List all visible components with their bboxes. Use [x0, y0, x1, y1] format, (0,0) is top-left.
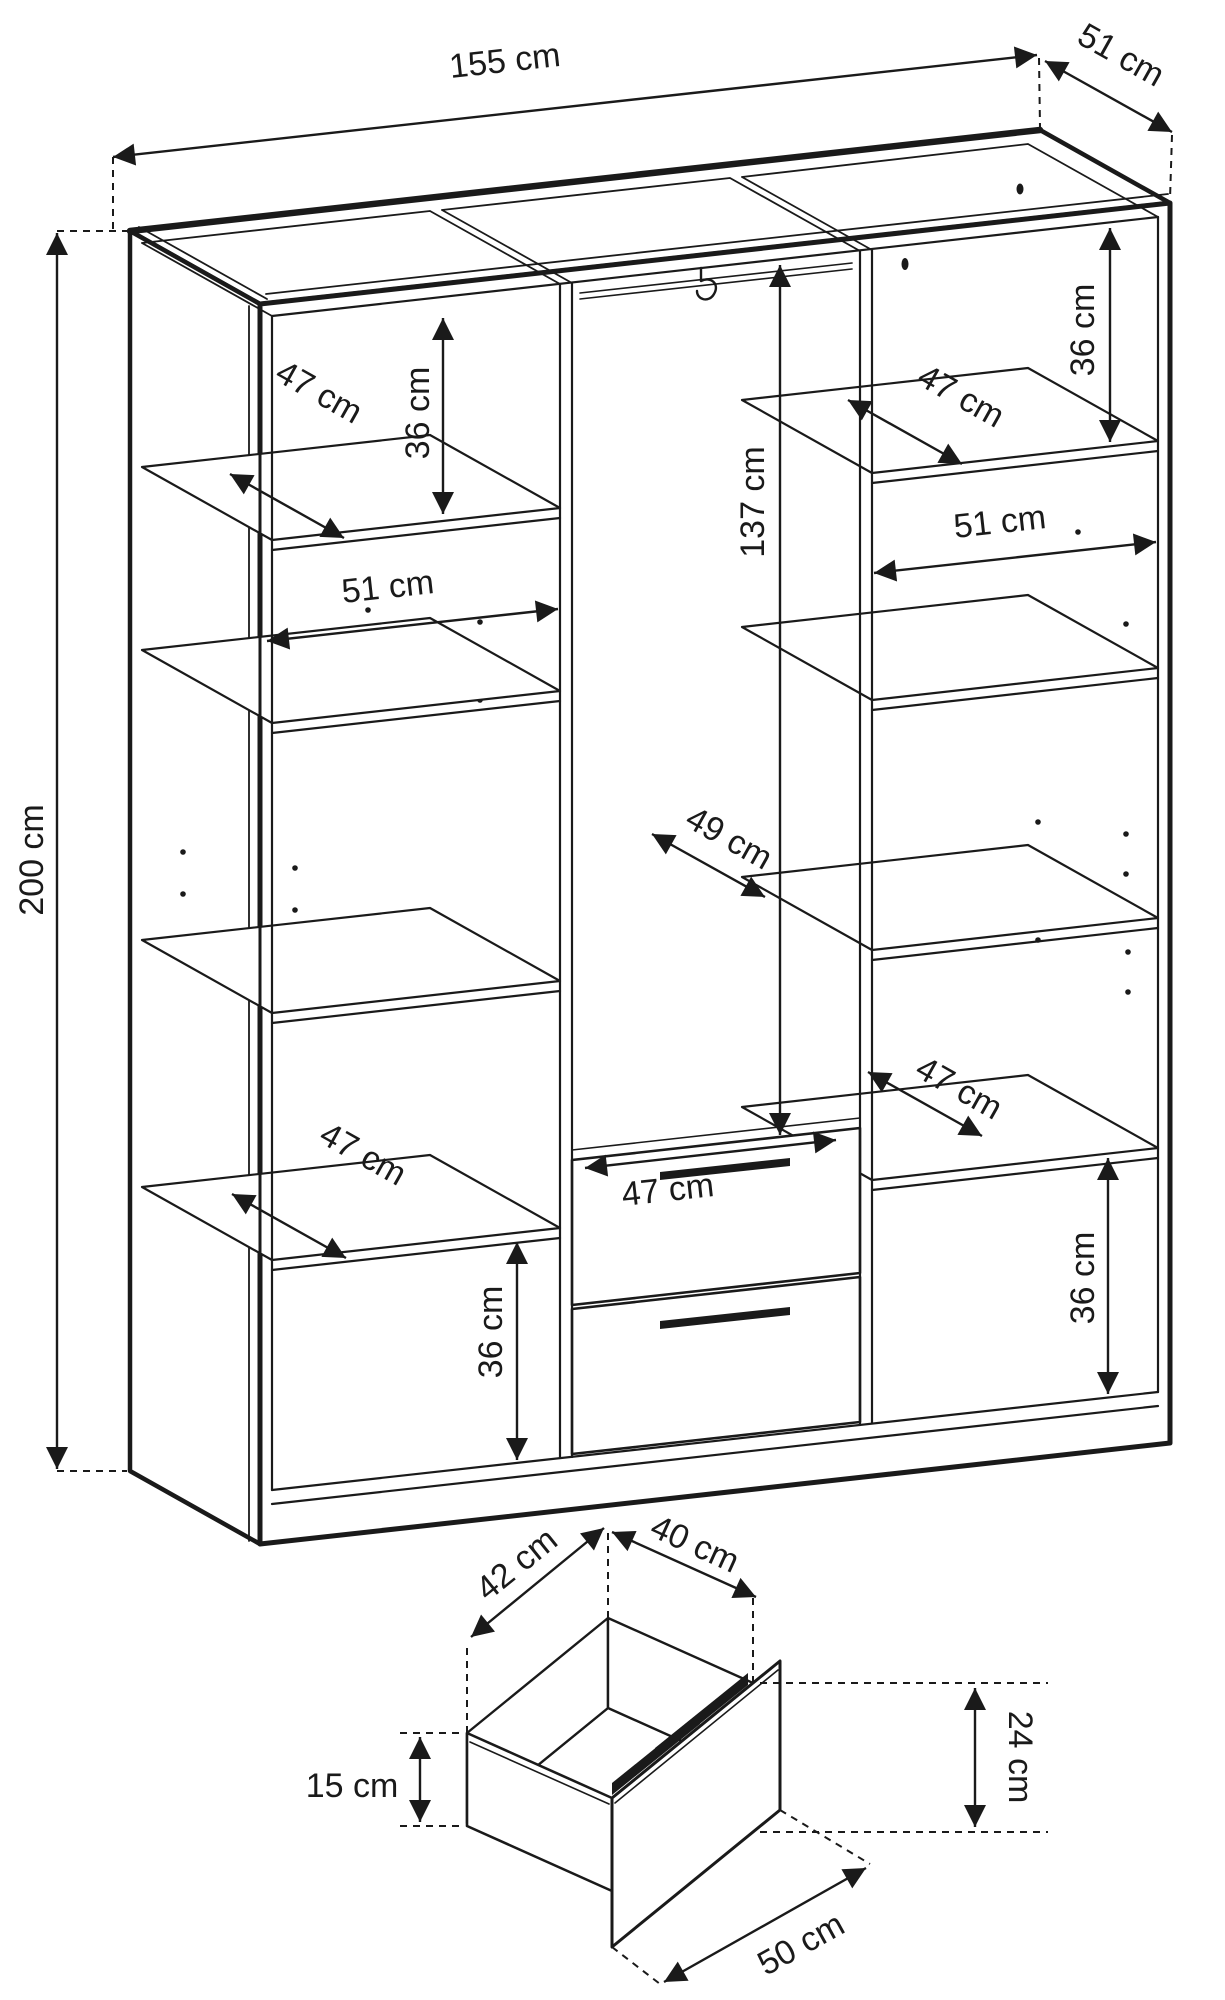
- dim-label-drawer-side-height: 15 cm: [306, 1767, 399, 1805]
- dim-label-drawer-front-width: 50 cm: [751, 1905, 850, 1983]
- dim-label-drawer-front-height: 24 cm: [1001, 1711, 1039, 1804]
- technical-drawing-page: 155 cm 51 cm 200 cm 36 cm 47 cm 51 cm 47…: [0, 0, 1225, 2000]
- dim-label-overall-width: 155 cm: [447, 36, 562, 86]
- dim-label-right-top-gap: 36 cm: [1064, 284, 1102, 377]
- dim-label-drawer-inner-depth: 42 cm: [469, 1521, 565, 1609]
- dim-label-middle-height: 137 cm: [734, 446, 772, 558]
- drawer-front-bottom: [572, 1277, 860, 1454]
- wardrobe-drawing: 155 cm 51 cm 200 cm 36 cm 47 cm 51 cm 47…: [13, 16, 1172, 1544]
- wardrobe-left-side-panel: [130, 231, 260, 1544]
- dim-label-left-top-gap: 36 cm: [399, 367, 437, 460]
- middle-column-drawers: [572, 1118, 860, 1454]
- dim-label-overall-height: 200 cm: [13, 804, 51, 916]
- drawer-detail-drawing: 42 cm 40 cm 15 cm 24 cm 50 cm: [306, 1508, 1048, 1984]
- dim-label-left-bottom-gap: 36 cm: [472, 1286, 510, 1379]
- wardrobe-technical-drawing: 155 cm 51 cm 200 cm 36 cm 47 cm 51 cm 47…: [0, 0, 1225, 2000]
- dimension-arrow: [113, 55, 1037, 157]
- dim-label-right-bottom-gap: 36 cm: [1064, 1232, 1102, 1325]
